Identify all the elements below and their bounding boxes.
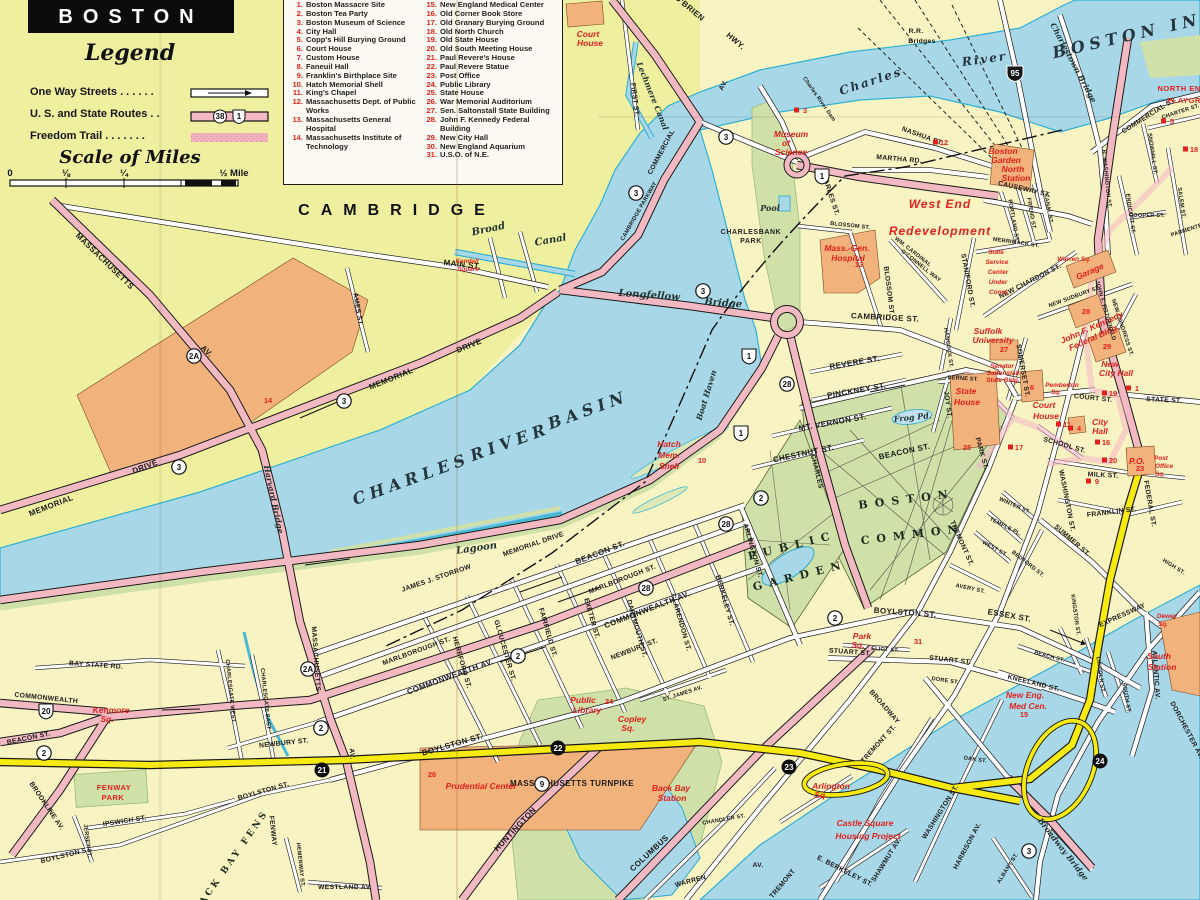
map-label: Bridges — [908, 38, 935, 45]
index-item: 14.Massachusetts Institute of Technology — [290, 134, 420, 152]
index-item-number: 14. — [290, 134, 303, 152]
svg-text:3: 3 — [634, 189, 639, 198]
map-label: PARK — [102, 793, 125, 802]
map-label: Office — [1155, 463, 1173, 470]
legend-label-one-way: One Way Streets . . . . . . — [30, 86, 154, 98]
index-item-number: 28. — [424, 116, 437, 134]
map-label: Service — [986, 259, 1009, 266]
landmark-marker: 23 — [1136, 464, 1144, 473]
map-label: South — [1147, 651, 1171, 661]
legend-row-routes: U. S. and State Routes . . 38 1 — [30, 108, 270, 124]
svg-text:6: 6 — [1030, 383, 1034, 392]
index-item-number: 31. — [424, 151, 437, 160]
landmark-marker: 15 — [1020, 710, 1028, 719]
map-label: State — [988, 249, 1004, 256]
landmark-marker: 10 — [698, 456, 706, 465]
svg-text:13: 13 — [855, 260, 863, 269]
svg-text:2: 2 — [319, 724, 324, 733]
map-label: Public — [570, 695, 596, 705]
svg-text:½ Mile: ½ Mile — [219, 168, 248, 179]
map-label: Sq. — [1051, 389, 1061, 396]
svg-text:23: 23 — [1136, 464, 1144, 473]
map-label: FENWAY — [97, 783, 131, 792]
svg-text:2: 2 — [516, 652, 521, 661]
index-column-1: 1.Boston Massacre Site2.Boston Tea Party… — [290, 1, 424, 182]
map-label: State — [956, 386, 977, 396]
map-label: Sq. — [100, 714, 113, 724]
svg-text:⅛: ⅛ — [62, 168, 71, 179]
landmark-marker: 29 — [1103, 342, 1111, 351]
svg-text:22: 22 — [554, 744, 563, 753]
map-label: House — [954, 397, 980, 407]
route-shield: 3 — [696, 284, 710, 298]
svg-text:16: 16 — [1102, 438, 1110, 447]
svg-text:26: 26 — [428, 770, 436, 779]
svg-text:1: 1 — [739, 429, 744, 438]
map-label: Hall — [1092, 426, 1108, 436]
legend-label-freedom-trail: Freedom Trail . . . . . . . — [30, 130, 145, 142]
svg-text:1: 1 — [747, 352, 752, 361]
map-label: Hatch — [657, 439, 681, 449]
legend-row-one-way: One Way Streets . . . . . . — [30, 86, 270, 102]
map-label: Post — [1154, 455, 1169, 462]
map-title-banner: BOSTON — [28, 0, 234, 33]
map-label: AV. — [752, 862, 763, 869]
landmark-marker: 28 — [1082, 307, 1090, 316]
legend-label-routes: U. S. and State Routes . . — [30, 108, 160, 120]
map-label: University — [972, 335, 1014, 345]
freedom-trail-symbol-icon — [190, 130, 270, 145]
map-label: West End — [909, 197, 971, 211]
index-item: 28.John F. Kennedy Federal Building — [424, 116, 554, 134]
routes-symbol-icon: 38 1 — [190, 108, 270, 124]
water-pool — [779, 196, 790, 211]
map-label: Library — [573, 705, 603, 715]
landmark-marker: 13 — [855, 260, 863, 269]
route-shield: 2 — [754, 491, 768, 505]
landmark-marker: 24 — [605, 697, 614, 706]
route-shield: 2A — [187, 349, 201, 363]
map-label: Housing Project — [835, 831, 901, 841]
route-shield: 2 — [511, 649, 525, 663]
route-shield: 2A — [301, 662, 315, 676]
svg-text:1: 1 — [237, 112, 242, 121]
map-label: AV. — [348, 748, 356, 760]
map-label: House — [1033, 411, 1059, 421]
svg-text:31: 31 — [914, 637, 922, 646]
route-shield: 20 — [39, 704, 53, 719]
svg-text:5: 5 — [1170, 117, 1174, 126]
svg-text:95: 95 — [1011, 69, 1020, 78]
svg-text:2A: 2A — [189, 352, 199, 361]
map-label: NORTH END — [1157, 84, 1200, 93]
exit-marker: 22 — [551, 741, 566, 756]
map-label: CAMBRIDGE — [298, 202, 496, 219]
svg-text:3: 3 — [1027, 847, 1032, 856]
route-shield: 3 — [629, 186, 643, 200]
map-label: Station — [1002, 173, 1031, 183]
map-label: Center — [988, 269, 1009, 276]
map-label: City Hall — [1099, 368, 1134, 378]
svg-text:2: 2 — [42, 749, 47, 758]
svg-text:¼: ¼ — [120, 168, 129, 179]
svg-text:2A: 2A — [303, 665, 313, 674]
block-court-house-cambridge — [566, 1, 604, 27]
index-item-number: 13. — [290, 116, 303, 134]
svg-text:24: 24 — [1096, 757, 1105, 766]
svg-text:24: 24 — [605, 697, 614, 706]
route-shield: 2 — [828, 611, 842, 625]
map-label: PARK — [740, 238, 762, 245]
map-label: Shell — [659, 461, 680, 471]
svg-text:2: 2 — [833, 614, 838, 623]
map-label: Station — [658, 793, 687, 803]
landmark-marker: 6 — [1030, 383, 1034, 392]
map-label: Sq. — [814, 790, 827, 800]
legend-title: Legend — [0, 40, 260, 66]
map-label: Const. — [989, 289, 1009, 296]
map-label: Station — [1148, 662, 1177, 672]
map-label: MASSACHUSETTS TURNPIKE — [510, 779, 634, 788]
scale-bar: 0 ⅛ ¼ ½ Mile — [2, 166, 258, 194]
svg-text:9: 9 — [1095, 477, 1099, 486]
exit-marker: 21 — [315, 763, 330, 778]
map-label: House — [577, 38, 603, 48]
svg-text:1: 1 — [1135, 384, 1139, 393]
svg-text:23: 23 — [785, 763, 794, 772]
index-item: 12.Massachusetts Dept. of Public Works — [290, 98, 420, 116]
map-label: CHARLESBANK — [721, 229, 782, 236]
landmark-marker: 26 — [428, 770, 436, 779]
svg-text:2: 2 — [759, 494, 764, 503]
route-shield: 28 — [719, 517, 733, 531]
landmark-index-panel: 1.Boston Massacre Site2.Boston Tea Party… — [283, 0, 563, 185]
svg-text:29: 29 — [1103, 342, 1111, 351]
index-item-name: U.S.O. of N.E. — [440, 151, 554, 160]
map-label: Castle Square — [837, 818, 894, 828]
index-item-name: Massachusetts Institute of Technology — [306, 134, 420, 152]
map-label: State Bldg. — [986, 377, 1020, 384]
svg-text:20: 20 — [1109, 456, 1117, 465]
route-shield: 3 — [172, 460, 186, 474]
index-item: 13.Massachusetts General Hospital — [290, 116, 420, 134]
svg-text:3: 3 — [724, 133, 729, 142]
svg-text:12: 12 — [940, 138, 948, 147]
index-item-number: 12. — [290, 98, 303, 116]
svg-text:20: 20 — [42, 707, 51, 716]
boston-street-map: CAMBRIDGEMAIN ST.FIRST ST.AMES ST.BroadC… — [0, 0, 1200, 900]
svg-text:38: 38 — [216, 112, 225, 121]
legend-row-freedom-trail: Freedom Trail . . . . . . . — [30, 130, 270, 146]
map-label: Kendall — [455, 258, 478, 265]
map-label: Science — [775, 147, 807, 157]
exit-marker: 24 — [1093, 754, 1108, 769]
map-label: Mass.-Gen. — [824, 243, 869, 253]
map-label: Saltonstall — [987, 370, 1020, 377]
map-label: Sq. — [621, 723, 634, 733]
route-shield: 3 — [1022, 844, 1036, 858]
index-item-name: John F. Kennedy Federal Building — [440, 116, 554, 134]
index-column-2: 15.New England Medical Center16.Old Corn… — [424, 1, 558, 182]
legend-panel: BOSTON Legend One Way Streets . . . . . … — [0, 0, 280, 200]
svg-text:27: 27 — [1000, 345, 1008, 354]
map-label: Sq. — [1158, 621, 1168, 628]
svg-text:3: 3 — [701, 287, 706, 296]
map-label: Dewey — [1157, 613, 1178, 620]
svg-text:15: 15 — [1020, 710, 1028, 719]
svg-text:28: 28 — [783, 380, 792, 389]
map-label: Redevelopment — [889, 224, 991, 238]
map-label: Under — [989, 279, 1008, 286]
svg-text:1: 1 — [820, 172, 825, 181]
map-label: R.R. — [909, 28, 924, 35]
route-shield: 1 — [742, 349, 756, 364]
svg-text:18: 18 — [1190, 145, 1198, 154]
index-item-name: Massachusetts General Hospital — [306, 116, 420, 134]
one-way-symbol-icon — [190, 86, 270, 101]
map-label: WESTLAND AV. — [318, 884, 372, 891]
route-shield: 28 — [639, 581, 653, 595]
map-label: Sq. — [851, 640, 864, 650]
svg-text:19: 19 — [1109, 389, 1117, 398]
landmark-marker: 27 — [1000, 345, 1008, 354]
map-label: New Eng. — [1006, 690, 1044, 700]
route-shield: 2 — [314, 721, 328, 735]
landmark-marker: 31 — [914, 637, 922, 646]
svg-text:28: 28 — [642, 584, 651, 593]
svg-text:21: 21 — [318, 766, 327, 775]
exit-marker: 23 — [782, 760, 797, 775]
map-label: Square — [457, 266, 479, 273]
map-label: Pool — [759, 203, 780, 213]
route-shield: 3 — [719, 130, 733, 144]
svg-text:0: 0 — [7, 168, 12, 179]
park-north-end-playground — [1140, 35, 1200, 78]
svg-text:9: 9 — [540, 780, 545, 789]
route-shield: 3 — [337, 394, 351, 408]
route-shield: 28 — [780, 377, 794, 391]
svg-text:17: 17 — [1015, 443, 1023, 452]
map-label: Warren Sq. — [1057, 256, 1091, 263]
svg-text:10: 10 — [698, 456, 706, 465]
map-label: Sq. — [1155, 471, 1165, 478]
svg-text:3: 3 — [177, 463, 182, 472]
map-label: Prudential Center — [446, 781, 518, 791]
map-label: Court — [1033, 400, 1057, 410]
index-item-name: Massachusetts Dept. of Public Works — [306, 98, 420, 116]
landmark-marker: 14 — [264, 396, 273, 405]
index-item: 31.U.S.O. of N.E. — [424, 151, 554, 160]
svg-text:28: 28 — [1082, 307, 1090, 316]
map-label: Back Bay — [652, 783, 692, 793]
landmark-marker: 25 — [963, 443, 971, 452]
route-shield: 9 — [535, 777, 549, 791]
svg-text:3: 3 — [803, 106, 807, 115]
map-label: Mem. — [658, 450, 680, 460]
map-label: Senator — [990, 363, 1014, 370]
route-shield: 95 — [1007, 66, 1023, 82]
svg-text:14: 14 — [264, 396, 273, 405]
route-shield: 2 — [37, 746, 51, 760]
map-label: PLAYGROUND — [1167, 96, 1200, 105]
scale-title: Scale of Miles — [0, 147, 260, 168]
route-shield: 1 — [734, 426, 748, 441]
map-label: Pemberton — [1045, 382, 1078, 389]
svg-text:3: 3 — [342, 397, 347, 406]
svg-text:28: 28 — [722, 520, 731, 529]
route-shield: 1 — [815, 169, 829, 184]
map-label: COOPER ST. — [1129, 213, 1165, 219]
svg-text:25: 25 — [963, 443, 971, 452]
map-label: Museum — [774, 129, 809, 139]
